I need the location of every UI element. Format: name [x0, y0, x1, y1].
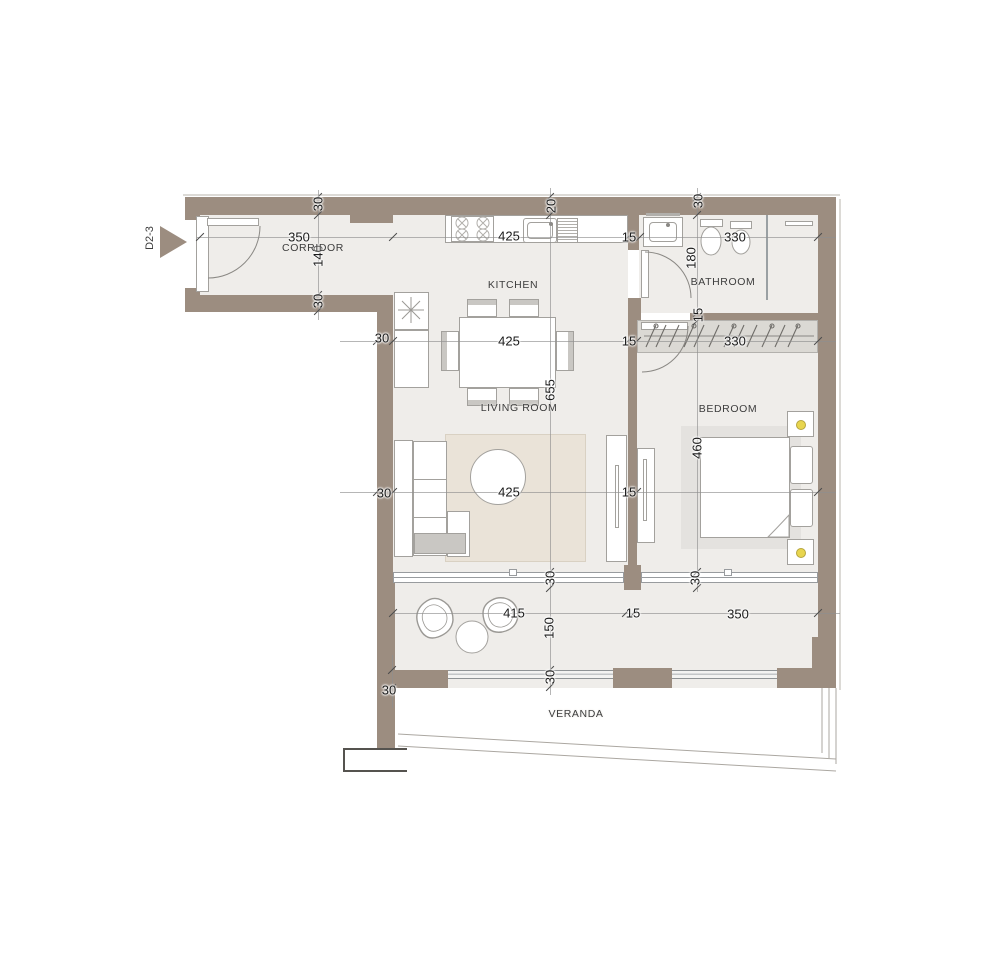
boiler-icon	[398, 297, 424, 323]
room-label-bathroom: BATHROOM	[691, 276, 756, 288]
dim-label-living-width: 425	[498, 485, 520, 500]
room-label-bedroom: BEDROOM	[699, 403, 757, 415]
lounge-chair-1-cushion	[422, 605, 447, 632]
dim-label-window-wall-living: 30	[543, 571, 558, 585]
dim-label-balcony-width-left: 415	[503, 606, 525, 621]
unit-label: D2-3	[144, 226, 156, 250]
dim-label-kitchen-bath-wall: 15	[622, 230, 636, 245]
bed-fold	[768, 515, 789, 537]
dim-label-partition-upper: 15	[622, 334, 636, 349]
dim-label-balcony-width-right: 350	[727, 607, 749, 622]
dim-label-bathroom-depth: 180	[684, 247, 699, 269]
dim-label-railing-wall: 30	[543, 670, 558, 684]
dim-label-wall-left-upper: 30	[375, 331, 389, 346]
dim-label-wall-top-bathroom: 30	[691, 194, 706, 208]
dim-label-dining-width: 425	[498, 334, 520, 349]
dim-label-counter-width: 425	[498, 229, 520, 244]
floor-plan-canvas: 3035014030425201533030180153042515330655…	[0, 0, 1000, 953]
dim-label-wall-corridor-bottom: 30	[311, 294, 326, 308]
dim-label-window-wall-bedroom: 30	[688, 571, 703, 585]
dim-line-h-mid1	[340, 341, 836, 342]
entrance-door-swing	[208, 226, 260, 278]
toilet-bowl	[701, 227, 721, 255]
unit-arrow-icon	[160, 226, 187, 258]
dim-label-balcony-depth: 150	[542, 617, 557, 639]
dim-line-h-mid2	[340, 492, 836, 493]
room-label-kitchen: KITCHEN	[488, 279, 538, 291]
dim-label-balcony-wall-mid: 15	[626, 606, 640, 621]
veranda-outline	[398, 688, 836, 771]
plan-overlay	[0, 0, 1000, 953]
dim-label-living-length: 655	[543, 379, 558, 401]
dim-label-bedroom-depth: 460	[690, 437, 705, 459]
dim-line-v-balcony-left	[392, 655, 393, 708]
dim-label-partition-lower: 15	[622, 485, 636, 500]
dim-line-h-balcony	[393, 613, 840, 614]
dim-label-bathroom-width: 330	[724, 230, 746, 245]
dim-label-bathroom-wall-bottom: 15	[691, 308, 706, 322]
dim-label-wardrobe-width: 330	[724, 334, 746, 349]
room-label-corridor: CORRIDOR	[282, 242, 344, 254]
room-label-veranda: VERANDA	[549, 708, 604, 720]
dim-label-wall-top-kitchen: 20	[544, 199, 559, 213]
dim-label-wall-top-corridor: 30	[311, 197, 326, 211]
room-label-living-room: LIVING ROOM	[481, 402, 558, 414]
bedroom-door-swing	[642, 326, 688, 372]
dim-label-balcony-wall-left: 30	[382, 683, 396, 698]
balcony-side-table	[456, 621, 488, 653]
dim-label-wall-left-lower: 30	[377, 486, 391, 501]
